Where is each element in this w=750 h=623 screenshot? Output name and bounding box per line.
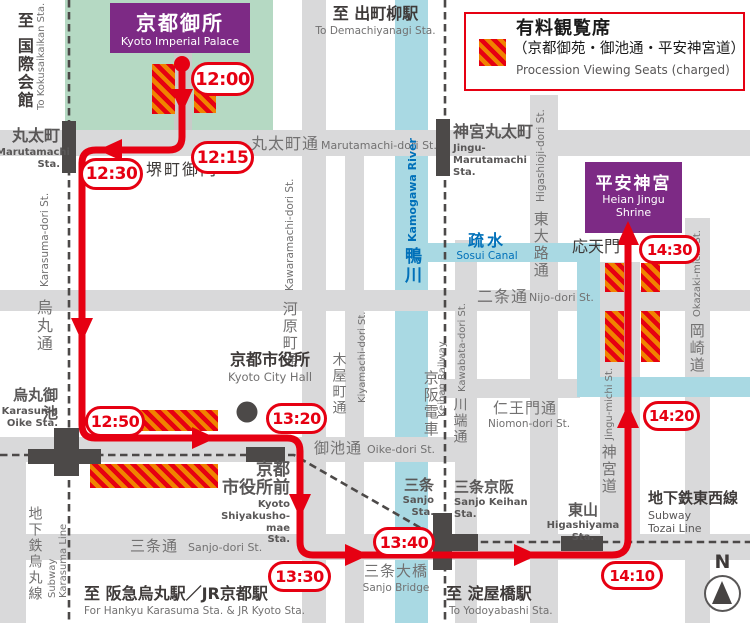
street-label-karasuma-ja: 烏丸通 xyxy=(33,299,52,353)
kamogawa-river-label-en: Kamogawa River xyxy=(407,138,419,242)
karasuma-line-label-en: Subway Karasuma Line xyxy=(47,524,69,598)
time-badge-1330: 13:30 xyxy=(268,561,331,592)
legend-title: 有料観覧席 xyxy=(516,18,611,39)
street-label-oike-en: Oike-dori St. xyxy=(367,444,435,457)
station-label-marutamachi-en: Marutamachi Sta. xyxy=(0,147,60,171)
station-label-sanjo-keihan-en: Sanjo Keihan Sta. xyxy=(454,497,528,521)
route-arrow-south-kawaramachi xyxy=(289,494,311,518)
direction-demachiyanagi-ja: 至 出町柳駅 xyxy=(308,5,443,24)
city-hall-label-en: Kyoto City Hall xyxy=(205,371,335,385)
station-marker-jingu-marutamachi xyxy=(436,119,450,176)
otenmon-label: 応天門 xyxy=(572,238,620,257)
street-label-kawaramachi-en: Kawaramachi-dori St. xyxy=(285,179,297,292)
station-label-higashiyama-ja: 東山 xyxy=(538,502,628,520)
time-badge-1340: 13:40 xyxy=(373,527,435,557)
street-label-karasuma-en: Karasuma-dori St. xyxy=(40,193,52,287)
route-start-dot xyxy=(174,56,190,72)
street-label-marutamachi-en: Marutamachi-dori St. xyxy=(321,140,437,153)
tozai-line-label-en: Subway Tozai Line xyxy=(648,510,702,536)
station-label-shiyakusho-ja: 京都 市役所前 xyxy=(203,462,290,498)
direction-hankyu-jr-ja: 至 阪急烏丸駅／JR京都駅 xyxy=(84,585,268,604)
street-label-nijo-en: Nijo-dori St. xyxy=(529,292,594,305)
station-label-higashiyama-en: Higashiyama Sta. xyxy=(534,520,632,544)
station-marker-sanjo-keihan-h xyxy=(452,534,478,551)
street-label-niomon-ja: 仁王門通 xyxy=(493,400,557,418)
station-marker-sanjo-keihan-v xyxy=(433,513,452,570)
street-label-okazaki-ja: 岡崎道 xyxy=(687,323,705,374)
direction-yodoyabashi-ja: 至 淀屋橋駅 xyxy=(446,585,532,604)
sosui-canal-label-ja: 疏水 xyxy=(448,232,526,251)
tozai-line-label-ja: 地下鉄東西線 xyxy=(648,490,738,508)
station-label-sanjo-keihan-ja: 三条京阪 xyxy=(454,479,514,497)
time-badge-1215: 12:15 xyxy=(191,141,254,174)
time-badge-1420: 14:20 xyxy=(643,401,700,431)
legend-scope: （京都御苑・御池通・平安神宮道） xyxy=(513,41,743,58)
street-label-kawabata-en: Kawabata-dori St. xyxy=(457,303,468,392)
time-badge-1320: 13:20 xyxy=(266,403,327,434)
street-label-higashioji-ja: 東大路通 xyxy=(531,211,549,279)
station-label-sanjo-ja: 三条 xyxy=(398,477,434,495)
route-arrow-east-sanjo-2 xyxy=(514,544,538,566)
route-arrow-south-karasuma xyxy=(71,318,93,342)
station-label-sanjo-en: Sanjo Sta. xyxy=(398,495,434,519)
legend-box: 有料観覧席 （京都御苑・御池通・平安神宮道） Procession Viewin… xyxy=(464,12,745,91)
direction-yodoyabashi-en: To Yodoyabashi Sta. xyxy=(449,605,553,617)
city-hall-label-ja: 京都市役所 xyxy=(205,351,335,370)
subway-tozai-line-path xyxy=(0,455,750,542)
compass-n-label: N xyxy=(704,551,741,573)
route-arrow-north-jingumichi xyxy=(617,404,639,428)
kyoto-procession-route-map: 京都御所 Kyoto Imperial Palace 平安神宮 Heian Ji… xyxy=(0,0,750,623)
time-badge-1200: 12:00 xyxy=(191,62,254,96)
route-arrow-east-oike xyxy=(192,427,216,449)
station-label-shiyakusho-en: Kyoto Shiyakusho-mae Sta. xyxy=(200,499,290,546)
street-label-sanjo-ja: 三条通 xyxy=(130,538,178,556)
route-arrow-down-palace xyxy=(171,89,193,113)
street-label-jingumichi-en: Jingu-michi St. xyxy=(604,368,615,440)
direction-kokusaikaikan-en: To Kokusaikaikan Sta. xyxy=(36,3,47,110)
kamogawa-river-label-ja: 鴨川 xyxy=(401,247,421,285)
sosui-canal-label-en: Sosui Canal xyxy=(448,250,526,262)
keihan-railway-label-en: Keihan Railway xyxy=(437,341,448,417)
street-label-higashioji-en: Higashioji-dori St. xyxy=(536,109,548,202)
karasuma-line-label-ja: 地下鉄烏丸線 xyxy=(26,506,43,602)
legend-subtitle-en: Procession Viewing Seats (charged) xyxy=(516,63,730,77)
direction-kokusaikaikan-ja: 至 国際会館 xyxy=(14,12,33,110)
time-badge-1250: 12:50 xyxy=(85,406,145,437)
street-label-jingumichi-ja: 神宮道 xyxy=(599,444,617,495)
compass-needle-icon xyxy=(712,581,732,604)
route-and-lines-layer xyxy=(0,0,750,623)
legend-seat-swatch xyxy=(479,39,506,66)
time-badge-1430: 14:30 xyxy=(639,235,700,264)
direction-demachiyanagi-en: To Demachiyanagi Sta. xyxy=(308,25,443,37)
street-label-nijo-ja: 二条通 xyxy=(477,288,528,307)
station-label-jingu-marutamachi-en: Jingu- Marutamachi Sta. xyxy=(453,143,527,178)
station-label-jingu-marutamachi-ja: 神宮丸太町 xyxy=(453,123,533,142)
time-badge-1410: 14:10 xyxy=(601,561,663,590)
street-label-kawabata-ja: 川端通 xyxy=(451,397,468,445)
station-label-karasuma-oike-en: Karasuma Oike Sta. xyxy=(0,406,58,430)
sanjo-bridge-label-ja: 三条大橋 xyxy=(356,563,436,581)
street-label-marutamachi-ja: 丸太町通 xyxy=(251,135,319,154)
route-arrow-north-otenmon xyxy=(617,221,639,245)
time-badge-1230: 12:30 xyxy=(80,158,143,190)
city-hall-dot xyxy=(237,402,258,423)
street-label-sanjo-en: Sanjo-dori St. xyxy=(188,542,262,555)
station-marker-karasuma-oike-h xyxy=(28,449,101,464)
street-label-oike-ja: 御池通 xyxy=(314,440,362,458)
sanjo-bridge-label-en: Sanjo Bridge xyxy=(356,582,436,594)
street-label-niomon-en: Niomon-dori St. xyxy=(488,418,570,430)
station-label-marutamachi-ja: 丸太町 xyxy=(0,127,60,146)
street-label-kiyamachi-en: Kiyamachi-dori St. xyxy=(357,312,368,403)
direction-hankyu-jr-en: For Hankyu Karasuma Sta. & JR Kyoto Sta. xyxy=(84,605,305,617)
